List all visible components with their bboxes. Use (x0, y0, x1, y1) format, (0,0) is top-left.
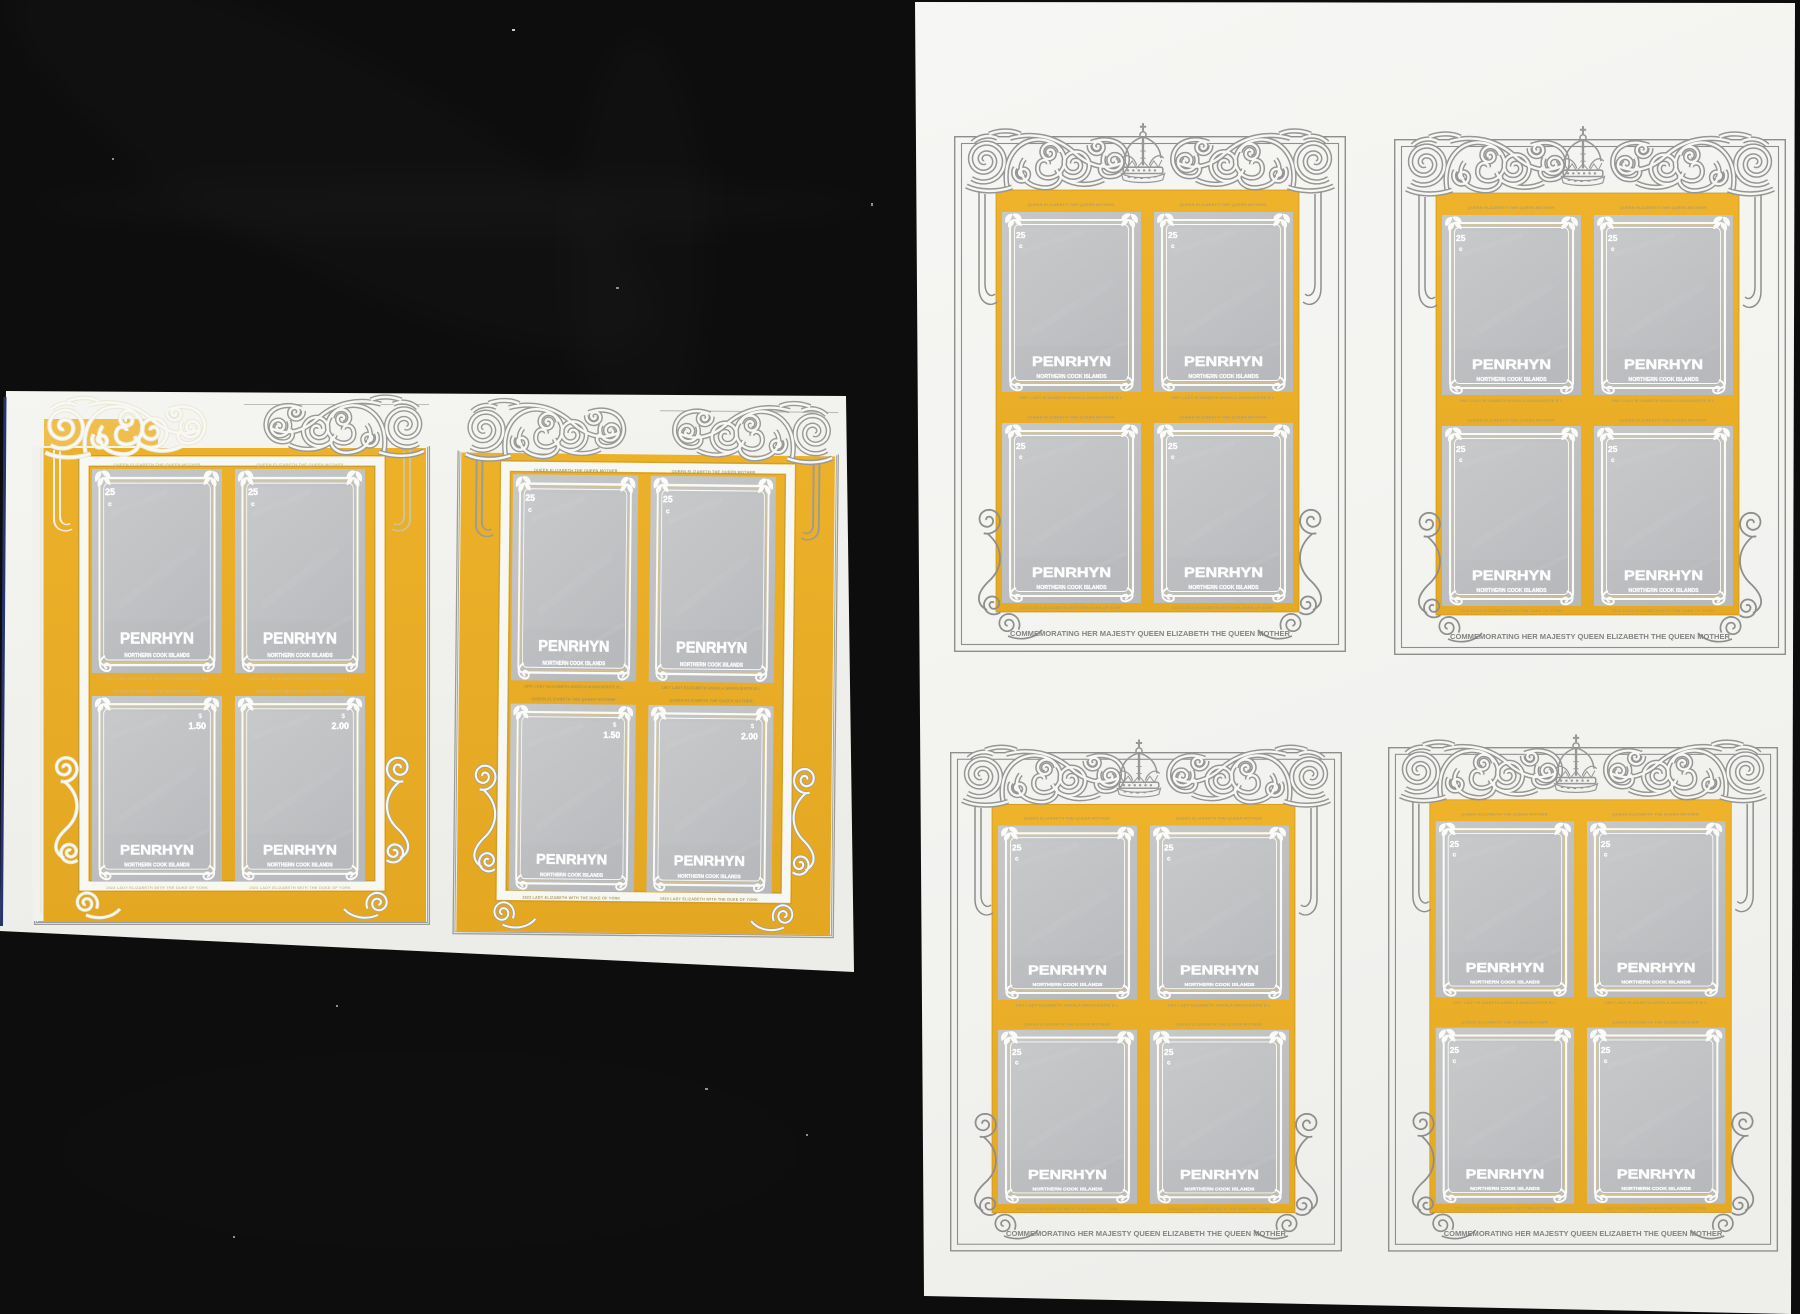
svg-text:$: $ (751, 723, 755, 730)
svg-text:1923 LADY ELIZABETH WITH THE D: 1923 LADY ELIZABETH WITH THE DUKE OF YOR… (106, 885, 208, 890)
svg-text:$: $ (613, 722, 617, 729)
svg-text:QUEEN ELIZABETH THE QUEEN MOTH: QUEEN ELIZABETH THE QUEEN MOTHER (672, 469, 756, 475)
svg-text:25: 25 (105, 487, 115, 497)
svg-text:2.00: 2.00 (741, 731, 758, 741)
svg-text:1.50: 1.50 (603, 730, 620, 740)
svg-text:2.00: 2.00 (331, 721, 349, 731)
svg-text:QUEEN ELIZABETH THE QUEEN MOTH: QUEEN ELIZABETH THE QUEEN MOTHER (532, 696, 616, 702)
svg-text:25: 25 (663, 494, 673, 504)
svg-text:c: c (108, 501, 112, 508)
svg-text:1907 LADY ELIZABETH ANGELA MAR: 1907 LADY ELIZABETH ANGELA MARGUERITE B … (105, 676, 209, 681)
svg-text:1.50: 1.50 (188, 721, 206, 731)
svg-text:$: $ (198, 713, 202, 720)
svg-text:c: c (528, 507, 532, 514)
svg-text:25: 25 (248, 487, 258, 497)
svg-text:25: 25 (525, 492, 535, 502)
svg-text:QUEEN ELIZABETH THE QUEEN MOTH: QUEEN ELIZABETH THE QUEEN MOTHER (534, 467, 618, 473)
svg-text:QUEEN ELIZABETH THE QUEEN MOTH: QUEEN ELIZABETH THE QUEEN MOTHER (669, 698, 753, 704)
svg-text:c: c (251, 501, 255, 508)
svg-text:1923 LADY ELIZABETH WITH THE D: 1923 LADY ELIZABETH WITH THE DUKE OF YOR… (249, 885, 351, 890)
svg-text:1907 LADY ELIZABETH ANGELA MAR: 1907 LADY ELIZABETH ANGELA MARGUERITE B … (248, 676, 352, 681)
svg-text:QUEEN ELIZABETH THE QUEEN MOTH: QUEEN ELIZABETH THE QUEEN MOTHER (256, 462, 343, 467)
svg-text:QUEEN ELIZABETH THE QUEEN MOTH: QUEEN ELIZABETH THE QUEEN MOTHER (256, 689, 343, 694)
svg-text:$: $ (341, 713, 345, 720)
svg-text:c: c (666, 508, 670, 515)
svg-text:QUEEN ELIZABETH THE QUEEN MOTH: QUEEN ELIZABETH THE QUEEN MOTHER (113, 462, 200, 467)
svg-text:QUEEN ELIZABETH THE QUEEN MOTH: QUEEN ELIZABETH THE QUEEN MOTHER (113, 689, 200, 694)
